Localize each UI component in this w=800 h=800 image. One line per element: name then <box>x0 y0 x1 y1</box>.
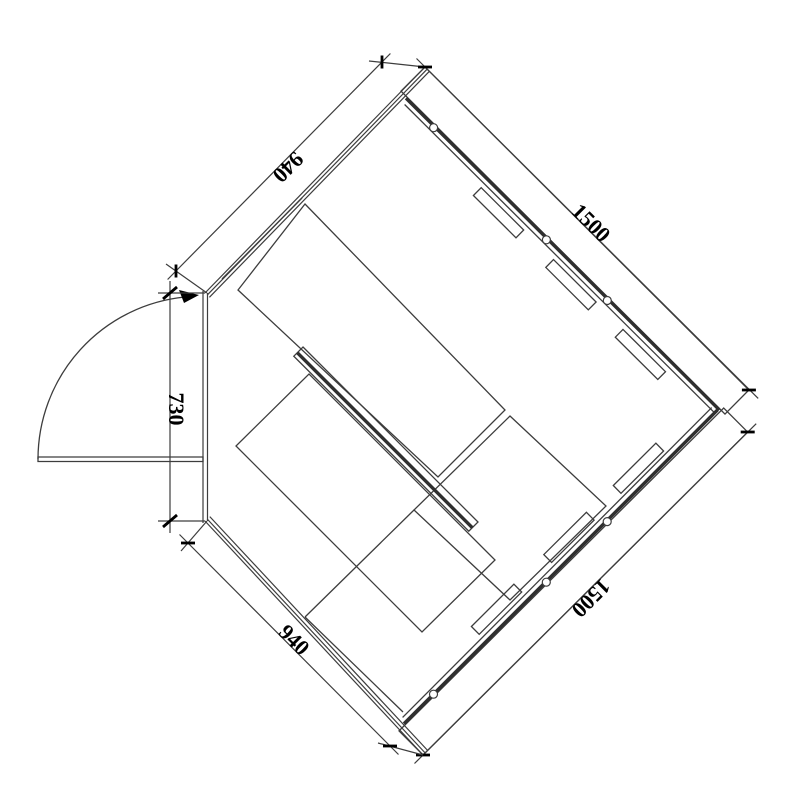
bench-lower <box>236 374 495 632</box>
sauna-floor-plan-drawing: 940 1500 1500 940 730 <box>0 0 800 800</box>
sauna-floor-plan-page: 940 1500 1500 940 730 <box>0 0 800 800</box>
dimension-lower-left: 940 <box>180 521 424 755</box>
dim-label-upper-left: 940 <box>268 147 309 188</box>
dim-label-door-side: 730 <box>164 393 189 426</box>
door <box>38 290 203 462</box>
dim-label-lower-left: 940 <box>274 619 315 660</box>
dim-label-upper-right: 1500 <box>567 198 616 247</box>
backrest-rail-center <box>294 347 478 531</box>
dim-label-lower-right: 1500 <box>567 574 616 623</box>
door-leaf <box>38 457 203 462</box>
dimension-upper-right: 1500 <box>417 59 759 399</box>
wall-lower-left <box>205 517 428 755</box>
wall-door-side <box>203 291 208 523</box>
dimension-lower-right: 1500 <box>415 424 757 764</box>
door-swing-arc <box>38 297 185 459</box>
backrest-upper-left-wall <box>222 198 302 279</box>
dimension-door-side: 730 <box>158 281 205 533</box>
wall-panel-upper-right <box>401 67 749 414</box>
door-swing-arrowhead <box>179 290 199 303</box>
wall-panel-lower-right <box>399 408 748 755</box>
wall-fixtures-lower-right <box>471 443 663 634</box>
dimension-upper-left: 940 <box>166 54 425 294</box>
